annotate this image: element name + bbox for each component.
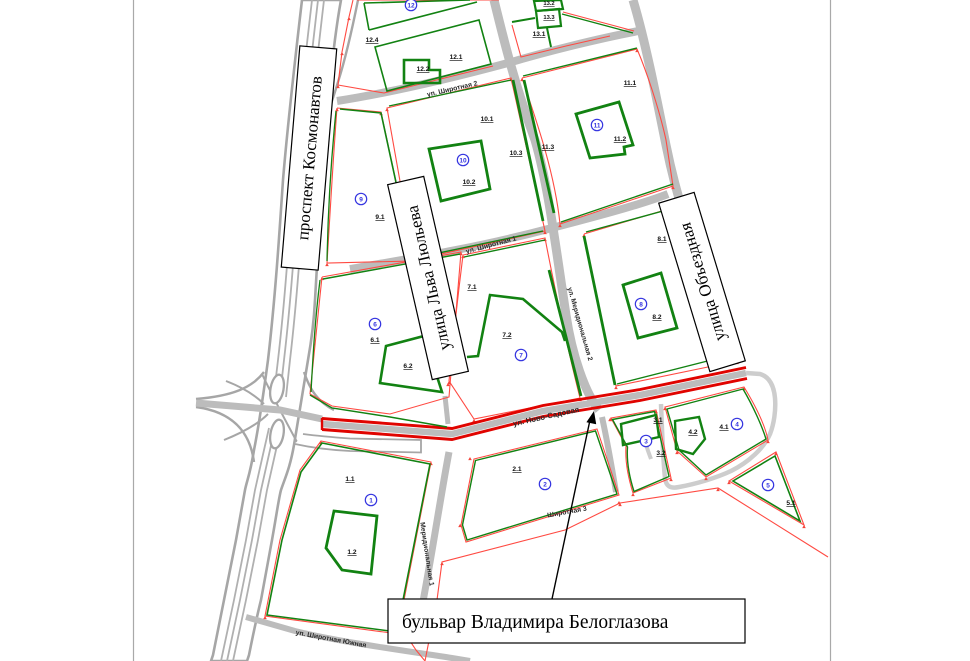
svg-text:13.1: 13.1 <box>533 31 546 38</box>
svg-text:11: 11 <box>594 123 601 130</box>
svg-text:2.1: 2.1 <box>512 466 521 473</box>
svg-text:1.2: 1.2 <box>347 549 356 556</box>
svg-text:12.1: 12.1 <box>450 54 463 61</box>
svg-text:9: 9 <box>359 197 363 204</box>
svg-text:8: 8 <box>639 302 643 309</box>
svg-text:10.2: 10.2 <box>463 179 476 186</box>
svg-text:6.1: 6.1 <box>370 337 379 344</box>
svg-text:11.3: 11.3 <box>542 144 555 151</box>
svg-text:8.1: 8.1 <box>657 236 666 243</box>
svg-text:5.1: 5.1 <box>786 500 795 507</box>
svg-text:10: 10 <box>459 158 467 165</box>
svg-text:2: 2 <box>543 482 547 489</box>
svg-text:13.2: 13.2 <box>543 1 554 7</box>
svg-text:13.3: 13.3 <box>543 15 555 21</box>
svg-text:7: 7 <box>519 353 523 360</box>
svg-text:6: 6 <box>373 322 377 329</box>
svg-text:10.3: 10.3 <box>510 150 523 157</box>
svg-text:6.2: 6.2 <box>403 363 412 370</box>
svg-text:4.1: 4.1 <box>719 424 728 431</box>
svg-text:7.2: 7.2 <box>502 332 511 339</box>
svg-text:9.1: 9.1 <box>375 214 384 221</box>
svg-text:4: 4 <box>735 422 739 429</box>
svg-text:1.1: 1.1 <box>345 476 354 483</box>
svg-text:3.2: 3.2 <box>656 450 665 457</box>
svg-text:5: 5 <box>766 483 770 490</box>
svg-text:10.1: 10.1 <box>481 116 494 123</box>
svg-text:11.2: 11.2 <box>614 136 627 143</box>
svg-text:4.2: 4.2 <box>688 429 697 436</box>
svg-text:11.1: 11.1 <box>624 80 637 87</box>
svg-text:3: 3 <box>644 439 648 446</box>
svg-text:12.2: 12.2 <box>417 66 430 73</box>
svg-text:12.4: 12.4 <box>366 37 379 44</box>
svg-text:12: 12 <box>407 3 415 10</box>
svg-text:3.1: 3.1 <box>653 417 662 424</box>
svg-text:бульвар Владимира Белоглазова: бульвар Владимира Белоглазова <box>402 612 669 633</box>
svg-text:8.2: 8.2 <box>652 314 661 321</box>
svg-text:1: 1 <box>369 498 373 505</box>
svg-text:7.1: 7.1 <box>467 284 476 291</box>
